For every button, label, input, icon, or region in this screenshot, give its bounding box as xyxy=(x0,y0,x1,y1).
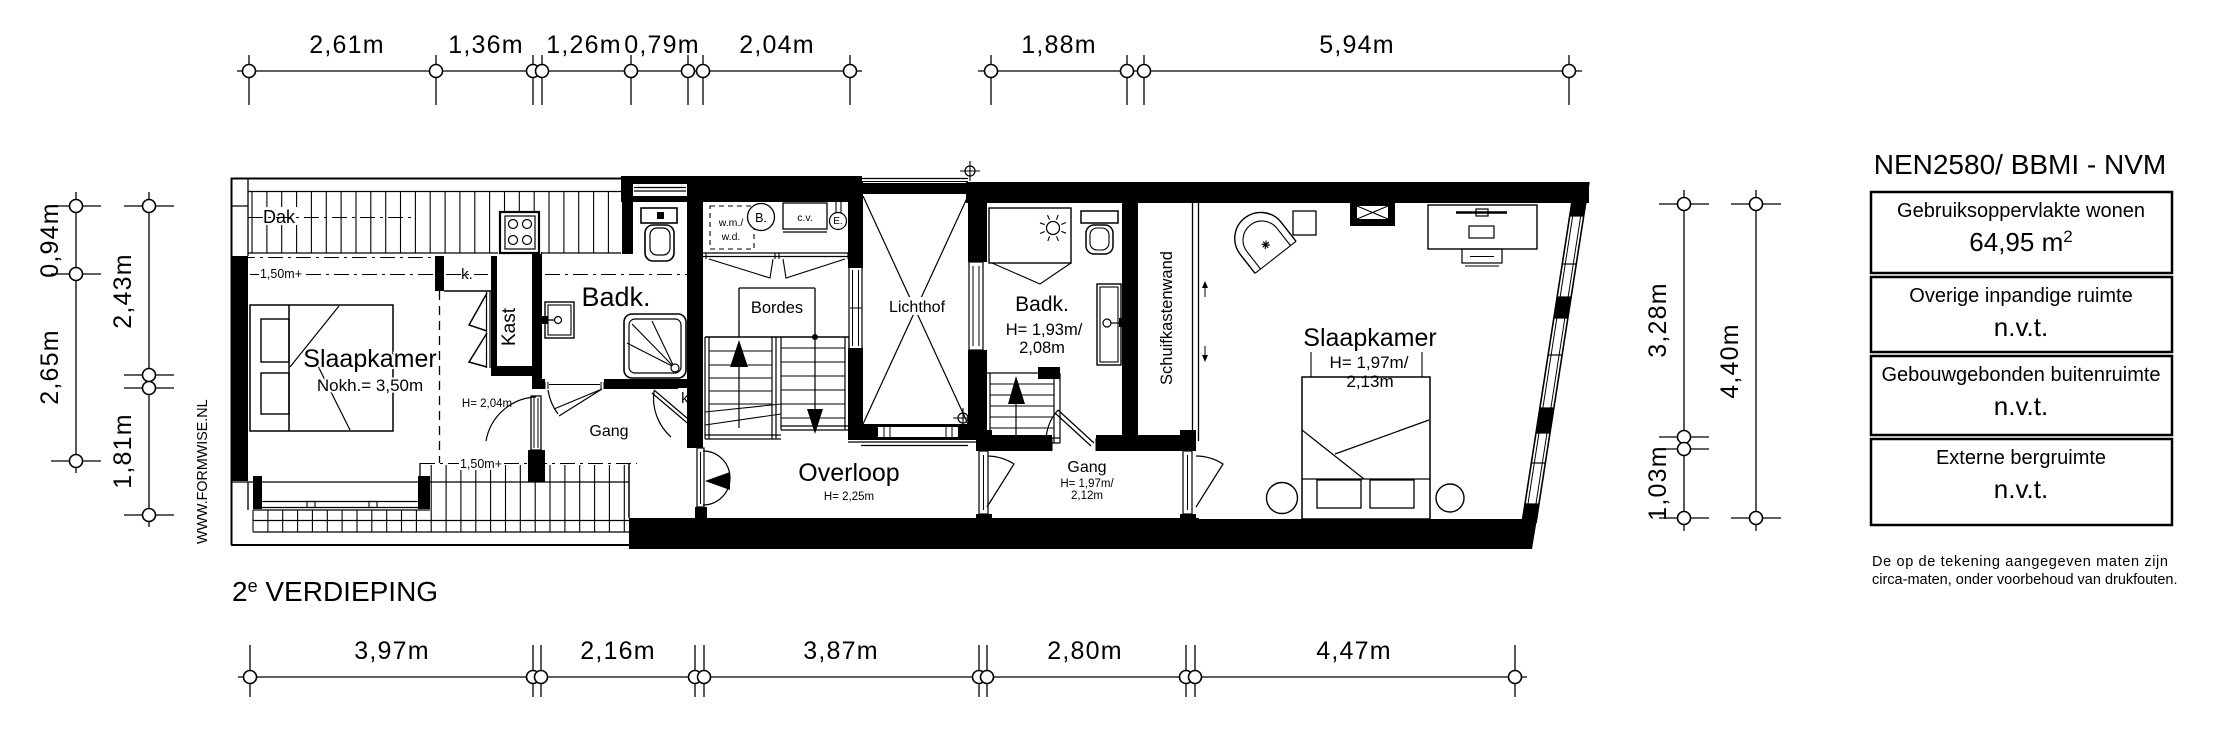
svg-text:1,03m: 1,03m xyxy=(1644,445,1672,520)
svg-text:w.d.: w.d. xyxy=(721,231,741,243)
svg-text:2,61m: 2,61m xyxy=(309,31,384,59)
svg-text:H= 2,04m: H= 2,04m xyxy=(462,398,512,410)
svg-text:w.m./: w.m./ xyxy=(718,217,744,229)
svg-text:Lichthof: Lichthof xyxy=(889,299,946,316)
svg-text:Badk.: Badk. xyxy=(1015,293,1069,316)
svg-text:1,81m: 1,81m xyxy=(109,413,137,488)
svg-text:0,94m: 0,94m xyxy=(36,202,64,277)
svg-text:Gebruiksoppervlakte wonen: Gebruiksoppervlakte wonen xyxy=(1897,200,2145,222)
svg-text:2,08m: 2,08m xyxy=(1019,339,1065,357)
svg-text:2,43m: 2,43m xyxy=(109,253,137,328)
svg-text:3,28m: 3,28m xyxy=(1644,282,1672,357)
svg-text:5,94m: 5,94m xyxy=(1319,31,1394,59)
svg-text:H= 2,25m: H= 2,25m xyxy=(824,491,874,503)
svg-text:De op de tekening aangegeven m: De op de tekening aangegeven maten zijn xyxy=(1872,554,2168,570)
svg-text:Kast: Kast xyxy=(499,307,520,346)
svg-text:4,47m: 4,47m xyxy=(1316,637,1391,665)
svg-text:1,26m: 1,26m xyxy=(546,31,621,59)
svg-text:2,12m: 2,12m xyxy=(1071,490,1103,502)
svg-text:3,87m: 3,87m xyxy=(803,637,878,665)
svg-text:Gebouwgebonden buitenruimte: Gebouwgebonden buitenruimte xyxy=(1881,364,2160,386)
svg-text:n.v.t.: n.v.t. xyxy=(1994,391,2048,421)
svg-text:E.: E. xyxy=(833,216,842,227)
svg-text:circa-maten, onder voorbehoud: circa-maten, onder voorbehoud van drukfo… xyxy=(1872,572,2178,588)
svg-text:Bordes: Bordes xyxy=(751,299,803,317)
svg-text:c.v.: c.v. xyxy=(797,212,813,224)
svg-text:1,36m: 1,36m xyxy=(448,31,523,59)
svg-text:Nokh.= 3,50m: Nokh.= 3,50m xyxy=(317,376,423,395)
svg-text:Overloop: Overloop xyxy=(798,459,899,487)
svg-text:Gang: Gang xyxy=(589,423,628,440)
svg-text:B.: B. xyxy=(755,211,767,225)
svg-text:H= 1,93m/: H= 1,93m/ xyxy=(1006,321,1083,339)
svg-text:n.v.t.: n.v.t. xyxy=(1994,474,2048,504)
svg-text:Externe bergruimte: Externe bergruimte xyxy=(1936,447,2106,469)
svg-text:2,65m: 2,65m xyxy=(36,329,64,404)
svg-text:1,50m+: 1,50m+ xyxy=(460,457,502,471)
svg-text:Gang: Gang xyxy=(1067,459,1106,476)
svg-text:Badk.: Badk. xyxy=(581,282,650,312)
svg-text:2,80m: 2,80m xyxy=(1047,637,1122,665)
svg-text:3,97m: 3,97m xyxy=(354,637,429,665)
svg-text:1,50m+: 1,50m+ xyxy=(260,267,302,281)
svg-text:Schuifkastenwand: Schuifkastenwand xyxy=(1158,251,1176,385)
svg-text:0,79m: 0,79m xyxy=(624,31,699,59)
svg-text:4,40m: 4,40m xyxy=(1716,323,1744,398)
svg-text:NEN2580/ BBMI - NVM: NEN2580/ BBMI - NVM xyxy=(1874,149,2167,180)
svg-text:Overige inpandige ruimte: Overige inpandige ruimte xyxy=(1909,285,2132,307)
svg-text:2,04m: 2,04m xyxy=(739,31,814,59)
svg-text:n.v.t.: n.v.t. xyxy=(1994,312,2048,342)
svg-text:64,95 m2: 64,95 m2 xyxy=(1969,227,2072,257)
svg-text:2e VERDIEPING: 2e VERDIEPING xyxy=(232,576,438,607)
svg-text:WWW.FORMWISE.NL: WWW.FORMWISE.NL xyxy=(195,399,211,544)
svg-text:H= 1,97m/: H= 1,97m/ xyxy=(1330,353,1409,372)
svg-text:Slaapkamer: Slaapkamer xyxy=(1303,324,1436,352)
svg-text:2,13m: 2,13m xyxy=(1346,372,1393,391)
svg-text:2,16m: 2,16m xyxy=(580,637,655,665)
svg-text:H= 1,97m/: H= 1,97m/ xyxy=(1060,478,1114,490)
svg-text:1,88m: 1,88m xyxy=(1021,31,1096,59)
svg-text:Slaapkamer: Slaapkamer xyxy=(303,345,436,373)
